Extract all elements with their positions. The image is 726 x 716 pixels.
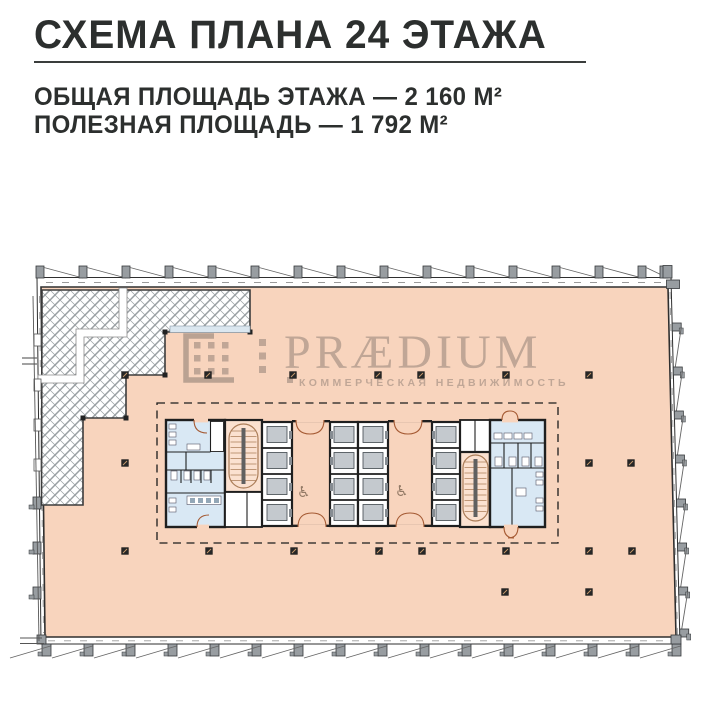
facade-top: [36, 266, 668, 278]
accessible-icon: ♿: [395, 482, 408, 500]
usable-area-label: ПОЛЕЗНАЯ ПЛОЩАДЬ — 1 792 М²: [34, 111, 448, 140]
floor-plan-drawing: PRÆDIUM КОММЕРЧЕСКАЯ НЕДВИЖИМОСТЬ: [0, 246, 726, 716]
glazed-partition-strip: [170, 326, 250, 333]
floor-plan-page: СХЕМА ПЛАНА 24 ЭТАЖА ОБЩАЯ ПЛОЩАДЬ ЭТАЖА…: [0, 0, 726, 716]
left-wall-protrusion: [22, 358, 37, 364]
brand-text: PRÆDIUM: [284, 326, 541, 379]
brand-tagline: КОММЕРЧЕСКАЯ НЕДВИЖИМОСТЬ: [299, 377, 569, 389]
restroom-east: [490, 420, 545, 527]
restroom-west: [166, 420, 225, 527]
building-core: ♿ ♿: [166, 411, 545, 538]
title-underline: [34, 61, 586, 63]
accessible-icon: ♿: [297, 483, 310, 501]
page-title: СХЕМА ПЛАНА 24 ЭТАЖА: [34, 13, 547, 58]
total-area-label: ОБЩАЯ ПЛОЩАДЬ ЭТАЖА — 2 160 М²: [34, 83, 502, 112]
facade-bottom: [10, 644, 681, 658]
